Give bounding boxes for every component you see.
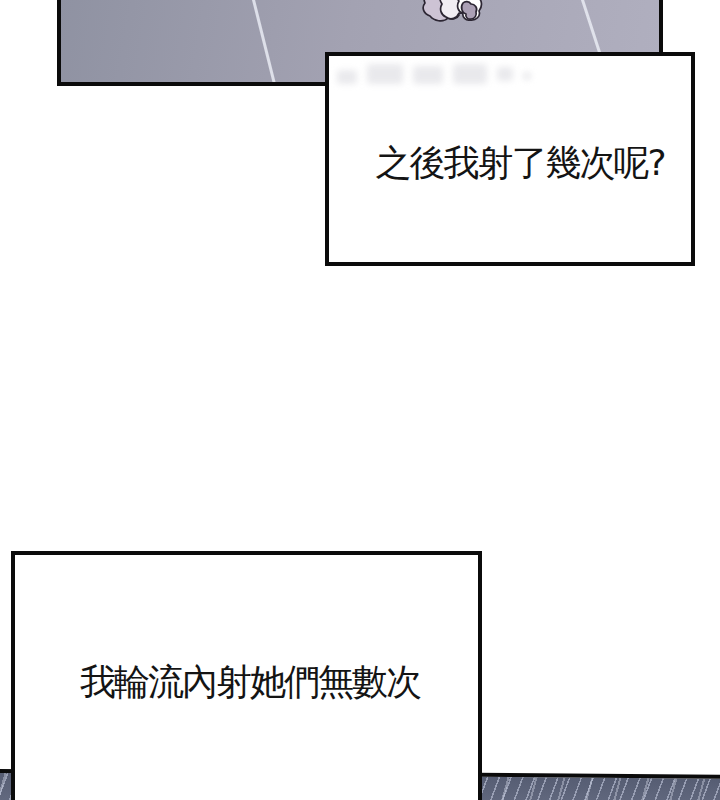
dialogue-box-1: 之後我射了幾次呢? xyxy=(325,52,695,266)
dialogue-text-1: 之後我射了幾次呢? xyxy=(329,142,711,183)
erased-watermark xyxy=(337,64,531,84)
dialogue-box-2: 我輪流內射她們無數次 xyxy=(11,551,482,800)
dialogue-text-2: 我輪流內射她們無數次 xyxy=(80,661,420,702)
crumpled-tissue-icon xyxy=(418,0,494,31)
comic-page: 之後我射了幾次呢? 我輪流內射她們無數次 xyxy=(0,0,720,800)
crumpled-tissue-illustration xyxy=(418,0,494,35)
tile-grout-line xyxy=(244,0,283,86)
